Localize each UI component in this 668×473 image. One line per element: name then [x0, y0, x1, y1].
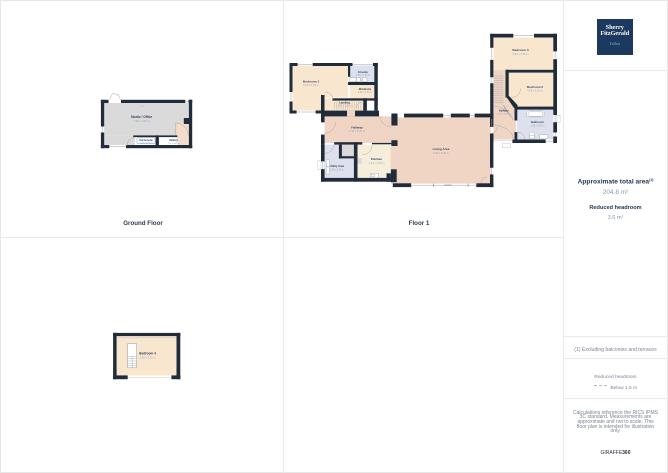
svg-text:3.81 x 1.01 m: 3.81 x 1.01 m	[338, 106, 352, 108]
svg-text:2.66 x 1.22 m: 2.66 x 1.22 m	[358, 92, 372, 94]
svg-text:4.28 x 3.15 m: 4.28 x 3.15 m	[527, 89, 543, 93]
svg-text:Landing: Landing	[339, 101, 350, 105]
svg-text:Bedroom 3: Bedroom 3	[512, 48, 528, 52]
svg-text:5.56 x 3.70 m: 5.56 x 3.70 m	[140, 355, 156, 359]
svg-text:5.60 x 3.26 m: 5.60 x 3.26 m	[513, 52, 529, 56]
svg-text:7.96 x 3.05 m: 7.96 x 3.05 m	[134, 119, 150, 123]
svg-text:Kitchen: Kitchen	[371, 157, 382, 161]
svg-text:3.05 x 3.45 m: 3.05 x 3.45 m	[330, 169, 344, 171]
svg-text:Hallway: Hallway	[351, 126, 363, 130]
svg-text:Utility Area: Utility Area	[330, 164, 345, 168]
svg-text:5.23 x 4.04 m: 5.23 x 4.04 m	[303, 83, 319, 87]
svg-text:Bathroom: Bathroom	[531, 120, 544, 124]
svg-text:Studio / Office: Studio / Office	[131, 115, 153, 119]
svg-text:Living Area: Living Area	[433, 147, 450, 151]
svg-text:Hallway: Hallway	[169, 139, 179, 142]
svg-text:2.66 x 1.56 m: 2.66 x 1.56 m	[356, 75, 370, 77]
svg-text:Hallway: Hallway	[499, 109, 509, 113]
svg-text:Wardrobe: Wardrobe	[359, 87, 372, 91]
svg-text:Bedroom 2: Bedroom 2	[527, 85, 543, 89]
svg-text:7.34 x 2.29 m: 7.34 x 2.29 m	[349, 129, 365, 133]
svg-text:Ensuite: Ensuite	[358, 70, 368, 74]
svg-text:Bedroom 4: Bedroom 4	[139, 351, 156, 355]
svg-text:1.70 x 3.02 m: 1.70 x 3.02 m	[497, 114, 510, 116]
svg-text:8.66 m: 8.66 m	[139, 105, 146, 108]
svg-text:1.02 x 0.80 m: 1.02 x 0.80 m	[167, 143, 179, 145]
svg-text:Bedroom 1: Bedroom 1	[303, 80, 319, 84]
svg-text:2.02 x 0.77 m: 2.02 x 0.77 m	[140, 143, 153, 145]
svg-text:9.29 x 6.46 m: 9.29 x 6.46 m	[433, 151, 449, 155]
svg-text:3.14 x 3.33 m: 3.14 x 3.33 m	[369, 161, 385, 165]
svg-text:3.39 x 2.60 m: 3.39 x 2.60 m	[531, 126, 545, 128]
